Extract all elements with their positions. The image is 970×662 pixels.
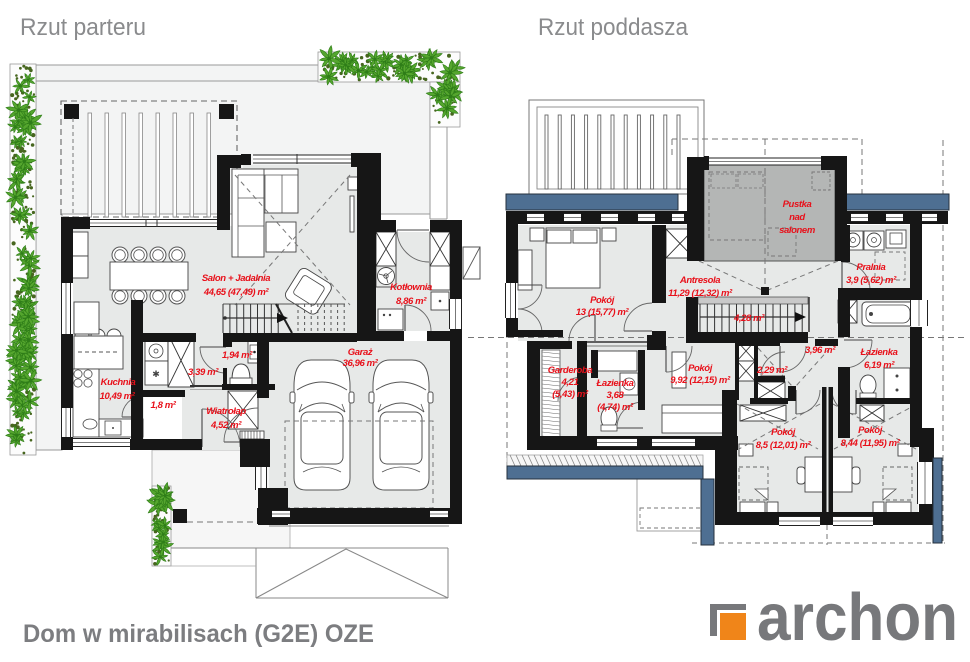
svg-text:36,96 m²: 36,96 m² (343, 358, 379, 369)
svg-text:1,94 m²: 1,94 m² (222, 350, 253, 361)
svg-text:4,21: 4,21 (561, 377, 579, 388)
svg-text:9,92 (12,15) m²: 9,92 (12,15) m² (670, 375, 731, 386)
svg-text:Pokój: Pokój (771, 427, 796, 438)
svg-text:8,86 m²: 8,86 m² (396, 296, 427, 307)
svg-text:11,29 (12,32) m²: 11,29 (12,32) m² (668, 288, 733, 299)
svg-text:Rzut parteru: Rzut parteru (20, 14, 146, 41)
svg-text:✱: ✱ (152, 369, 160, 379)
svg-text:8,5 (12,01) m²: 8,5 (12,01) m² (756, 440, 812, 451)
svg-text:Salon + Jadalnia: Salon + Jadalnia (202, 273, 270, 284)
svg-text:nad: nad (789, 212, 805, 223)
svg-text:10,49 m²: 10,49 m² (100, 391, 136, 402)
svg-text:3,39 m²: 3,39 m² (188, 367, 219, 378)
svg-text:Pokój: Pokój (688, 363, 713, 374)
svg-text:Antresola: Antresola (679, 275, 720, 286)
svg-text:8,44 (11,95) m²: 8,44 (11,95) m² (841, 438, 901, 449)
svg-text:6,19 m²: 6,19 m² (864, 360, 895, 371)
svg-text:4,52 m²: 4,52 m² (210, 420, 242, 431)
svg-text:44,65 (47,49) m²: 44,65 (47,49) m² (203, 287, 270, 298)
svg-text:Łazienka: Łazienka (596, 378, 634, 389)
svg-text:Rzut poddasza: Rzut poddasza (538, 14, 689, 41)
svg-text:Pokój: Pokój (590, 295, 615, 306)
svg-text:3,68: 3,68 (607, 390, 625, 401)
svg-text:3,96 m²: 3,96 m² (805, 345, 836, 356)
svg-text:archon: archon (757, 580, 958, 655)
svg-text:salonem: salonem (779, 225, 816, 236)
svg-text:Kuchnia: Kuchnia (101, 377, 136, 388)
svg-text:Wiatrołap: Wiatrołap (206, 406, 246, 417)
svg-text:Pustka: Pustka (783, 199, 812, 210)
svg-text:2,29 m²: 2,29 m² (756, 365, 788, 376)
svg-text:13 (15,77) m²: 13 (15,77) m² (576, 307, 630, 318)
svg-text:3,9 (5,62) m²: 3,9 (5,62) m² (846, 275, 897, 286)
svg-text:(5,43) m²: (5,43) m² (552, 389, 589, 400)
svg-text:(4,74) m²: (4,74) m² (597, 402, 634, 413)
svg-text:Garderoba: Garderoba (548, 365, 593, 376)
svg-text:Pokój: Pokój (858, 425, 883, 436)
svg-text:1,8 m²: 1,8 m² (150, 400, 176, 411)
svg-text:Łazienka: Łazienka (860, 347, 898, 358)
svg-text:Garaż: Garaż (348, 347, 373, 358)
svg-text:4,28 m²: 4,28 m² (733, 313, 765, 324)
svg-text:Kotłownia: Kotłownia (390, 282, 432, 293)
svg-text:Pralnia: Pralnia (857, 262, 886, 273)
svg-text:Dom w mirabilisach (G2E) OZE: Dom w mirabilisach (G2E) OZE (23, 620, 374, 648)
